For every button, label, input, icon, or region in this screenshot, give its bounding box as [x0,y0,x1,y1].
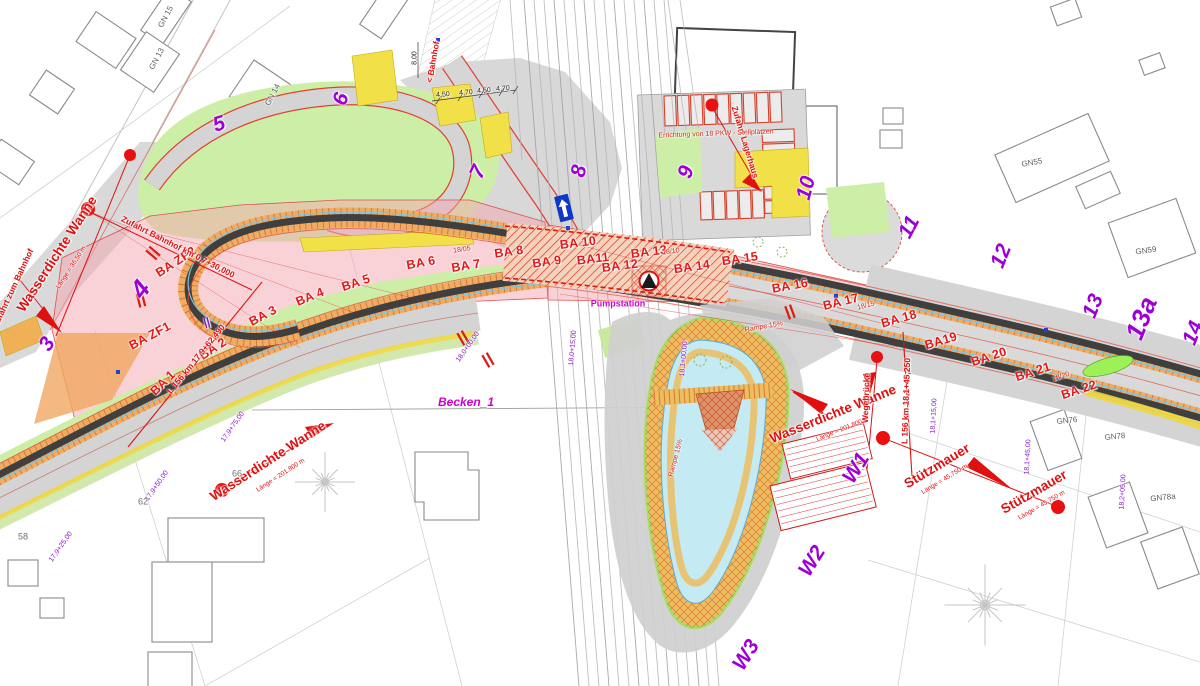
site-plan-stage: BA ZF2BA ZF1BA 1BA 2BA 3BA 4BA 5BA 6BA 7… [0,0,1200,686]
pump-station-icon [632,266,666,296]
compass-rose-icon [945,565,1026,646]
parking-stalls-row2 [700,190,764,220]
retention-basin [605,298,844,653]
site-plan-canvas [0,0,1200,686]
compass-rose-icon [295,452,355,512]
